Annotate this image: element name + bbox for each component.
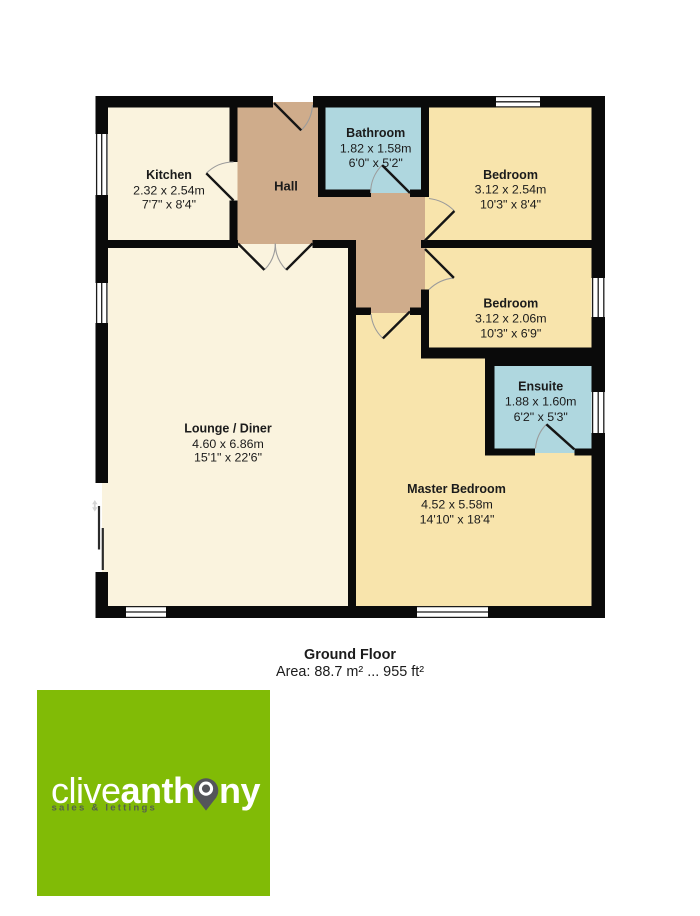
svg-text:Bedroom: Bedroom [483, 297, 538, 311]
svg-text:1.88 x 1.60m: 1.88 x 1.60m [505, 395, 577, 409]
svg-text:4.52 x 5.58m: 4.52 x 5.58m [421, 498, 493, 512]
svg-text:Bathroom: Bathroom [346, 126, 405, 140]
svg-text:7'7" x 8'4": 7'7" x 8'4" [142, 198, 196, 212]
svg-text:Lounge / Diner: Lounge / Diner [184, 422, 272, 436]
svg-text:ny: ny [219, 770, 260, 811]
svg-text:sales & lettings: sales & lettings [52, 803, 158, 814]
svg-text:4.60 x 6.86m: 4.60 x 6.86m [192, 437, 264, 451]
svg-text:3.12 x 2.54m: 3.12 x 2.54m [475, 183, 547, 197]
svg-text:Hall: Hall [274, 179, 298, 194]
svg-text:Master Bedroom: Master Bedroom [407, 482, 506, 496]
svg-text:Bedroom: Bedroom [483, 168, 538, 182]
svg-text:Ensuite: Ensuite [518, 380, 563, 394]
svg-text:Area: 88.7 m² ... 955 ft²: Area: 88.7 m² ... 955 ft² [276, 664, 424, 680]
svg-text:2.32 x 2.54m: 2.32 x 2.54m [133, 183, 205, 197]
svg-text:15'1" x 22'6": 15'1" x 22'6" [194, 451, 262, 465]
svg-text:10'3" x 6'9": 10'3" x 6'9" [480, 326, 541, 340]
svg-text:1.82 x 1.58m: 1.82 x 1.58m [340, 141, 412, 155]
svg-text:6'2" x 5'3": 6'2" x 5'3" [514, 410, 568, 424]
svg-text:10'3" x 8'4": 10'3" x 8'4" [480, 198, 541, 212]
svg-text:Ground Floor: Ground Floor [304, 647, 396, 663]
svg-text:Kitchen: Kitchen [146, 168, 192, 182]
svg-text:14'10" x 18'4": 14'10" x 18'4" [420, 513, 495, 527]
svg-text:6'0" x 5'2": 6'0" x 5'2" [349, 156, 403, 170]
svg-text:3.12 x 2.06m: 3.12 x 2.06m [475, 311, 547, 325]
